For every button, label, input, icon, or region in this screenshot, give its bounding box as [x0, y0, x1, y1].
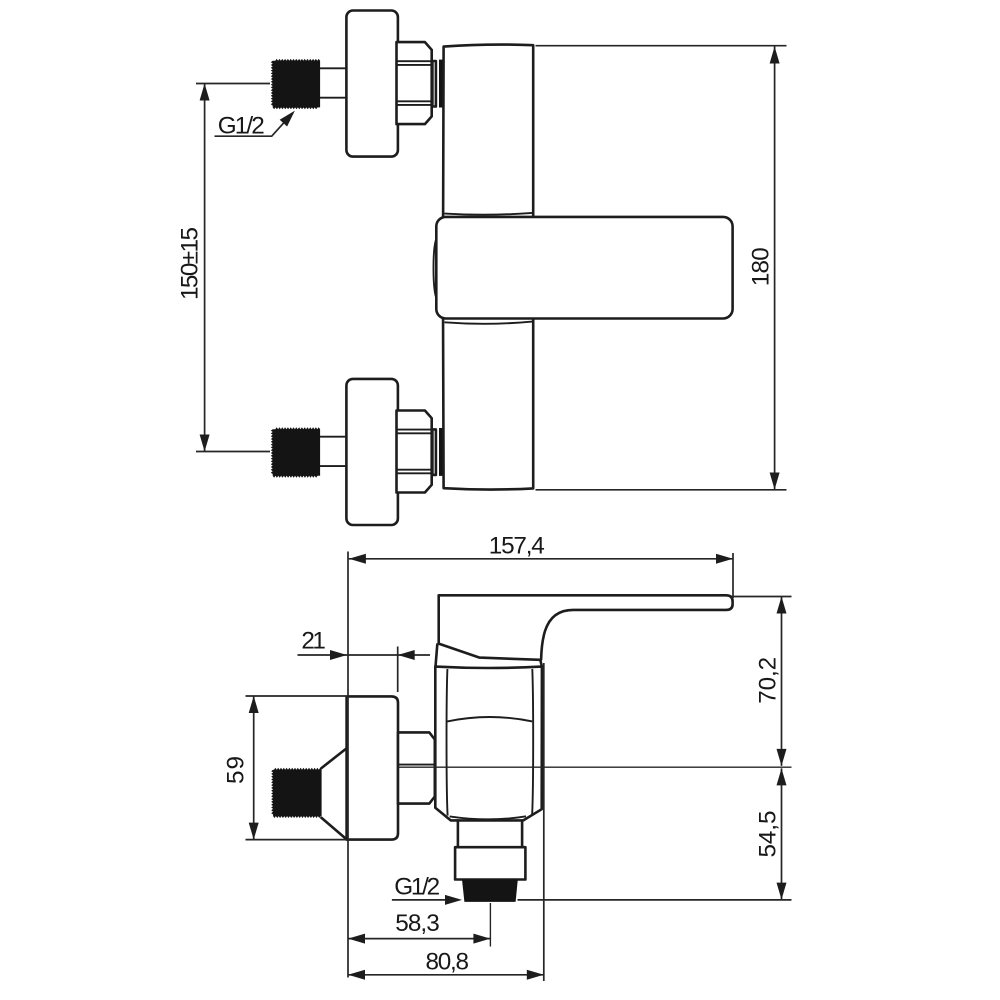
- svg-text:59: 59: [223, 756, 250, 784]
- svg-text:54,5: 54,5: [754, 811, 781, 858]
- svg-text:80,8: 80,8: [426, 949, 470, 976]
- svg-text:21: 21: [301, 628, 326, 655]
- svg-text:150±15: 150±15: [177, 227, 204, 300]
- svg-text:G1/2: G1/2: [394, 874, 440, 901]
- svg-text:180: 180: [747, 247, 774, 286]
- svg-text:58,3: 58,3: [395, 910, 440, 937]
- svg-text:157,4: 157,4: [489, 533, 545, 560]
- svg-text:70,2: 70,2: [754, 657, 781, 704]
